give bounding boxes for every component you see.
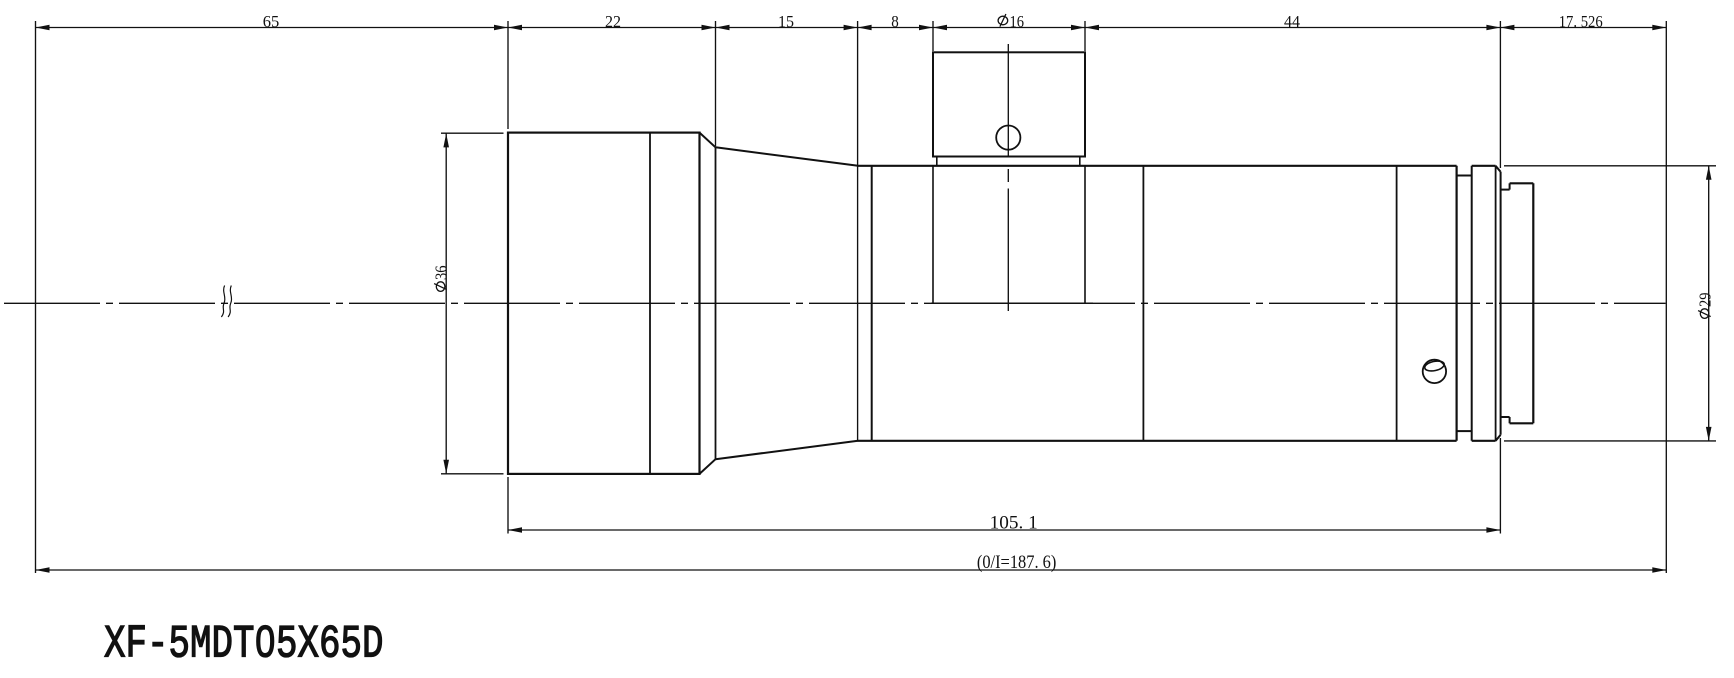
svg-text:XF-5MDT05X65D: XF-5MDT05X65D	[104, 618, 384, 671]
svg-text:22: 22	[605, 12, 621, 31]
svg-text:16: 16	[1010, 12, 1025, 31]
svg-text:17. 526: 17. 526	[1559, 12, 1603, 31]
svg-text:44: 44	[1284, 12, 1300, 31]
svg-text:15: 15	[778, 12, 794, 31]
svg-text:36: 36	[432, 266, 451, 281]
svg-text:29: 29	[1696, 293, 1715, 308]
svg-text:(0/I=187. 6): (0/I=187. 6)	[977, 553, 1057, 573]
svg-text:65: 65	[263, 12, 280, 31]
svg-text:8: 8	[891, 12, 899, 31]
svg-text:105. 1: 105. 1	[990, 514, 1038, 534]
